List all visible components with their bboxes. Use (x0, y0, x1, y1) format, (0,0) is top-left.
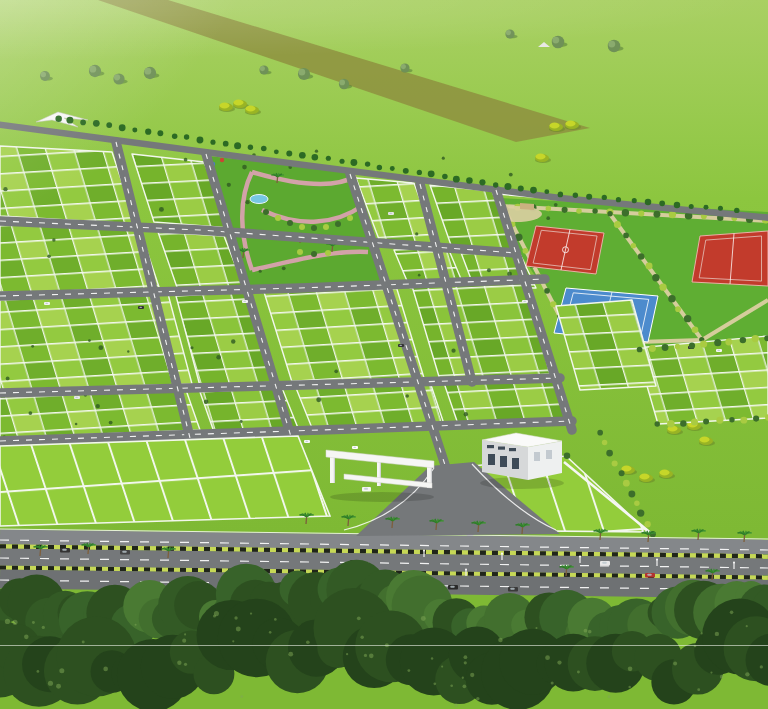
hedge-bush (652, 274, 659, 281)
vehicle (645, 573, 655, 578)
roadside-tree (365, 161, 370, 166)
roadside-tree (417, 170, 422, 175)
roadside-tree (479, 179, 485, 185)
roadside-tree (616, 197, 621, 202)
building-window (500, 456, 507, 467)
canopy-highlight (184, 633, 186, 635)
plot-shrub (259, 270, 262, 273)
canopy-highlight (357, 617, 361, 621)
plot-shrub (231, 339, 235, 343)
lamp-head (423, 550, 425, 552)
plot-shrub (405, 394, 409, 398)
hedge-bush (638, 253, 645, 260)
canopy-highlight (37, 670, 40, 673)
canopy-highlight (12, 620, 17, 625)
plot-shrub (451, 349, 455, 353)
canopy-highlight (234, 616, 237, 619)
hedge-bush (752, 335, 759, 342)
roadside-tree (689, 204, 694, 209)
plot-block (636, 336, 768, 424)
plot-shrub (464, 412, 468, 416)
palm-trunk (40, 549, 41, 556)
plot-shrub (28, 411, 32, 415)
gate-shadow (330, 492, 434, 502)
vehicle (522, 300, 528, 303)
hedge-bush (703, 419, 709, 425)
palm-trunk (522, 527, 523, 534)
canopy-highlight (214, 611, 219, 616)
hedge-bush (597, 430, 603, 436)
roadside-tree (734, 208, 739, 213)
front-plot-block (0, 436, 330, 526)
canopy-highlight (250, 612, 252, 614)
canopy-highlight (720, 675, 724, 679)
canopy-highlight (476, 697, 479, 700)
hedge-bush (637, 347, 643, 353)
palm-trunk (88, 547, 89, 554)
roadside-tree (299, 152, 306, 159)
park-hedge (323, 224, 329, 230)
plot-shrub (418, 274, 421, 277)
hedge-bush (623, 233, 629, 239)
canopy-highlight (346, 653, 348, 655)
canopy-highlight (42, 626, 45, 629)
vehicle-windshield (244, 301, 246, 302)
hedge-bush (689, 343, 695, 349)
plot-shrub (190, 346, 193, 349)
vehicle (120, 550, 130, 555)
hedge-bush (649, 345, 656, 352)
vehicle-windshield (76, 397, 78, 398)
palm-trunk (478, 525, 479, 532)
vehicle-windshield (390, 213, 392, 214)
canopy-highlight (24, 635, 29, 640)
court-generic_red (692, 231, 768, 286)
hedge-bush (675, 344, 680, 349)
vehicle (388, 212, 394, 215)
vehicle-windshield (364, 488, 368, 490)
building-side-window (534, 452, 540, 461)
park-hedge (311, 251, 317, 257)
hedge-bush (592, 208, 597, 213)
building-window-small (487, 445, 494, 448)
top-haze-band (0, 0, 768, 60)
bush-top (566, 121, 576, 127)
vehicle (304, 440, 310, 443)
canopy-highlight (364, 654, 367, 657)
canopy-highlight (59, 668, 64, 673)
vehicle-windshield (140, 307, 142, 308)
canopy-highlight (135, 624, 137, 626)
vehicle (74, 396, 80, 399)
canopy-highlight (535, 627, 537, 629)
hedge-bush (740, 337, 746, 343)
canopy-highlight (730, 611, 734, 615)
plot-shrub (127, 350, 129, 352)
canopy-highlight (288, 652, 293, 657)
canopy-highlight (232, 640, 234, 642)
canopy-highlight (701, 632, 703, 634)
roadside-tree (602, 195, 607, 200)
tree-crown-light (339, 80, 345, 86)
palm-trunk (744, 535, 745, 542)
gate-pillar-shade (334, 456, 335, 483)
hedge-bush (644, 521, 650, 527)
park-hedge (287, 220, 293, 226)
roadside-tree (504, 183, 511, 190)
canopy-highlight (182, 639, 186, 643)
canopy-highlight (274, 618, 277, 621)
hedge-bush (725, 339, 732, 346)
site-plan-render (0, 0, 768, 709)
vehicle-windshield (648, 574, 652, 576)
canopy-highlight (628, 667, 633, 672)
canopy-highlight (306, 640, 310, 644)
clubhouse-building (480, 433, 564, 489)
canopy-highlight (584, 629, 588, 633)
palm-trunk (332, 246, 333, 252)
roadside-tree (390, 166, 395, 171)
building-window (512, 458, 519, 469)
vehicle-windshield (718, 350, 720, 351)
lamp-head (579, 556, 581, 558)
palm-trunk (600, 533, 601, 540)
canopy-highlight (462, 677, 464, 679)
canopy-highlight (551, 681, 554, 684)
hedge-bush (562, 207, 568, 213)
hedge-bush (653, 211, 660, 218)
vehicle (716, 349, 722, 352)
hedge-bush (646, 262, 653, 269)
canopy-highlight (421, 616, 426, 621)
canopy-highlight (184, 663, 187, 666)
canopy-highlight (369, 654, 374, 659)
canopy-highlight (5, 619, 10, 624)
building-side-window (546, 450, 552, 459)
plot-shrub (98, 345, 103, 350)
canopy-highlight (710, 671, 712, 673)
roadside-tree (645, 199, 651, 205)
hedge-bush (623, 480, 630, 487)
carriageway-1 (0, 557, 768, 567)
roadside-tree (312, 154, 319, 161)
palm-trunk (168, 551, 169, 558)
hedge-bush (700, 341, 707, 348)
vehicle-windshield (400, 345, 402, 346)
canopy-highlight (48, 681, 53, 686)
palm-trunk (306, 517, 307, 524)
park-hedge (275, 215, 281, 221)
roadside-tree (403, 168, 409, 174)
park-hedge (299, 224, 305, 230)
canopy-highlight (269, 631, 272, 634)
plot-shrub (415, 232, 418, 235)
vehicle-windshield (524, 301, 526, 302)
park-hedge (263, 209, 269, 215)
plot-shrub (315, 149, 318, 152)
canopy-highlight (103, 667, 108, 672)
vehicle-windshield (511, 588, 515, 590)
hedge-bush (716, 417, 723, 424)
tree-crown-light (401, 64, 406, 69)
vehicle (600, 561, 610, 566)
roadside-tree (326, 156, 331, 161)
hedge-bush (606, 450, 613, 457)
vehicle-windshield (306, 441, 308, 442)
park-hedge (347, 215, 353, 221)
bush-top (550, 123, 560, 129)
vehicle (448, 585, 458, 590)
roadside-tree (442, 174, 448, 180)
canopy-highlight (746, 625, 748, 627)
palm-trunk (712, 573, 713, 580)
hedge-bush (659, 284, 666, 291)
roadside-tree (674, 202, 680, 208)
lamp-head (733, 562, 735, 564)
plot-shrub (88, 339, 91, 342)
vehicle (242, 300, 248, 303)
roadside-tree (558, 192, 563, 197)
vehicle-windshield (354, 447, 356, 448)
canopy-highlight (745, 672, 749, 676)
vehicle (60, 548, 70, 553)
hedge-bush (668, 295, 675, 302)
vehicle-windshield (603, 562, 607, 564)
vehicle-windshield (451, 586, 455, 588)
canopy-highlight (697, 688, 700, 691)
canopy-highlight (470, 673, 474, 677)
vehicle (508, 587, 518, 592)
roadside-tree (586, 194, 592, 200)
roadside-tree (428, 170, 435, 177)
hedge-bush (691, 419, 698, 426)
plot-shrub (546, 216, 550, 220)
canopy-highlight (441, 666, 443, 668)
canopy-highlight (464, 661, 467, 664)
court-basketball (526, 226, 604, 274)
canopy-highlight (177, 661, 181, 665)
canopy-highlight (608, 695, 611, 698)
hedge-bush (637, 509, 644, 516)
roadside-tree (339, 159, 344, 164)
bush-top (622, 466, 632, 472)
canopy-highlight (673, 661, 677, 665)
palm-trunk (698, 533, 699, 540)
vehicle (138, 306, 144, 309)
palm-trunk (392, 521, 393, 528)
palm-trunk (566, 569, 567, 576)
vehicle-windshield (123, 551, 127, 553)
roadside-tree (466, 177, 473, 184)
palm-trunk (436, 523, 437, 530)
bush-top (536, 154, 546, 160)
hedge-bush (602, 440, 607, 445)
canopy-highlight (498, 638, 502, 642)
roadside-tree (530, 187, 537, 194)
plot-shrub (282, 266, 286, 270)
palm-trunk (648, 535, 649, 542)
canopy-highlight (715, 632, 719, 636)
hedge-bush (544, 288, 550, 294)
canopy-highlight (628, 686, 631, 689)
canopy-highlight (463, 685, 467, 689)
lamp-head (465, 569, 467, 571)
plot-shrub (442, 157, 445, 160)
hedge-bush (675, 306, 681, 312)
bush-top (660, 470, 670, 476)
plot-shrub (109, 421, 113, 425)
roadside-tree (350, 159, 357, 166)
hedge-bush (576, 208, 581, 213)
plot-shrub (554, 203, 558, 207)
hedge-bush (546, 206, 551, 211)
canopy-highlight (240, 695, 243, 698)
canopy-highlight (82, 641, 85, 644)
bush-top (700, 437, 710, 443)
hedge-bush (607, 211, 612, 216)
roadside-tree (659, 201, 665, 207)
plot-shrub (6, 376, 10, 380)
plot-shrub (75, 423, 78, 426)
hedge-bush (628, 491, 635, 498)
plot-shrub (96, 404, 100, 408)
canopy-highlight (56, 684, 61, 689)
palm-trunk (243, 252, 244, 258)
plot-shrub (31, 345, 34, 348)
plot-shrub (240, 420, 243, 423)
hedge-bush (667, 420, 674, 427)
plot-shrub (487, 268, 491, 272)
hedge-bush (680, 420, 686, 426)
plot-shrub (509, 173, 513, 177)
canopy-highlight (407, 669, 410, 672)
hedge-bush (619, 470, 625, 476)
canopy-highlight (464, 655, 468, 659)
hedge-bush (753, 416, 759, 422)
plot-shrub (216, 355, 221, 360)
canopy-highlight (431, 657, 433, 659)
vehicle (352, 446, 358, 449)
canopy-highlight (236, 626, 241, 631)
roadside-tree (493, 182, 498, 187)
roadside-tree (518, 185, 524, 191)
lamp-head (501, 553, 503, 555)
canopy-highlight (557, 660, 561, 664)
vehicle-windshield (63, 549, 67, 551)
hedge-bush (692, 326, 699, 333)
canopy-highlight (577, 670, 580, 673)
building-window-small (498, 447, 505, 450)
canopy-highlight (450, 684, 453, 687)
plot-shrub (316, 397, 321, 402)
hedge-bush (523, 248, 529, 254)
park-hedge (335, 221, 341, 227)
garden-structure (520, 203, 534, 210)
plot-shrub (204, 400, 209, 405)
plot-shrub (334, 370, 338, 374)
palm-trunk (348, 519, 349, 526)
hedge-bush (564, 452, 571, 459)
canopy-highlight (588, 630, 592, 634)
canopy-highlight (32, 621, 35, 624)
hedge-bush (740, 417, 747, 424)
park-hedge (311, 225, 317, 231)
hedge-bush (614, 221, 621, 228)
vehicle (362, 487, 371, 492)
hedge-bush (622, 209, 629, 216)
hedge-bush (662, 344, 669, 351)
building-window-small (509, 448, 516, 451)
park-hedge (297, 249, 303, 255)
hedge-bush (714, 339, 721, 346)
roadside-tree (377, 165, 382, 170)
hedge-bush (612, 460, 618, 466)
canopy-highlight (433, 682, 436, 685)
roadside-tree (632, 198, 637, 203)
aerial-render-viewport (0, 0, 768, 709)
park-hedge (325, 250, 331, 256)
hedge-bush (634, 501, 639, 506)
roadside-tree (453, 176, 460, 183)
canopy-highlight (360, 636, 363, 639)
hedge-bush (631, 243, 636, 248)
hedge-bush (729, 417, 734, 422)
hedge-bush (654, 421, 659, 426)
roadside-tree (718, 206, 723, 211)
canopy-highlight (455, 704, 458, 707)
bush-top (640, 474, 650, 480)
vehicle (398, 344, 404, 347)
hedge-bush (684, 315, 691, 322)
roadside-tree (703, 205, 708, 210)
canopy-highlight (545, 655, 550, 660)
roadside-tree (544, 189, 549, 194)
roadside-tree (573, 193, 578, 198)
canopy-highlight (760, 665, 763, 668)
hedge-bush (638, 211, 644, 217)
building-window (488, 454, 495, 465)
lamp-head (656, 559, 658, 561)
